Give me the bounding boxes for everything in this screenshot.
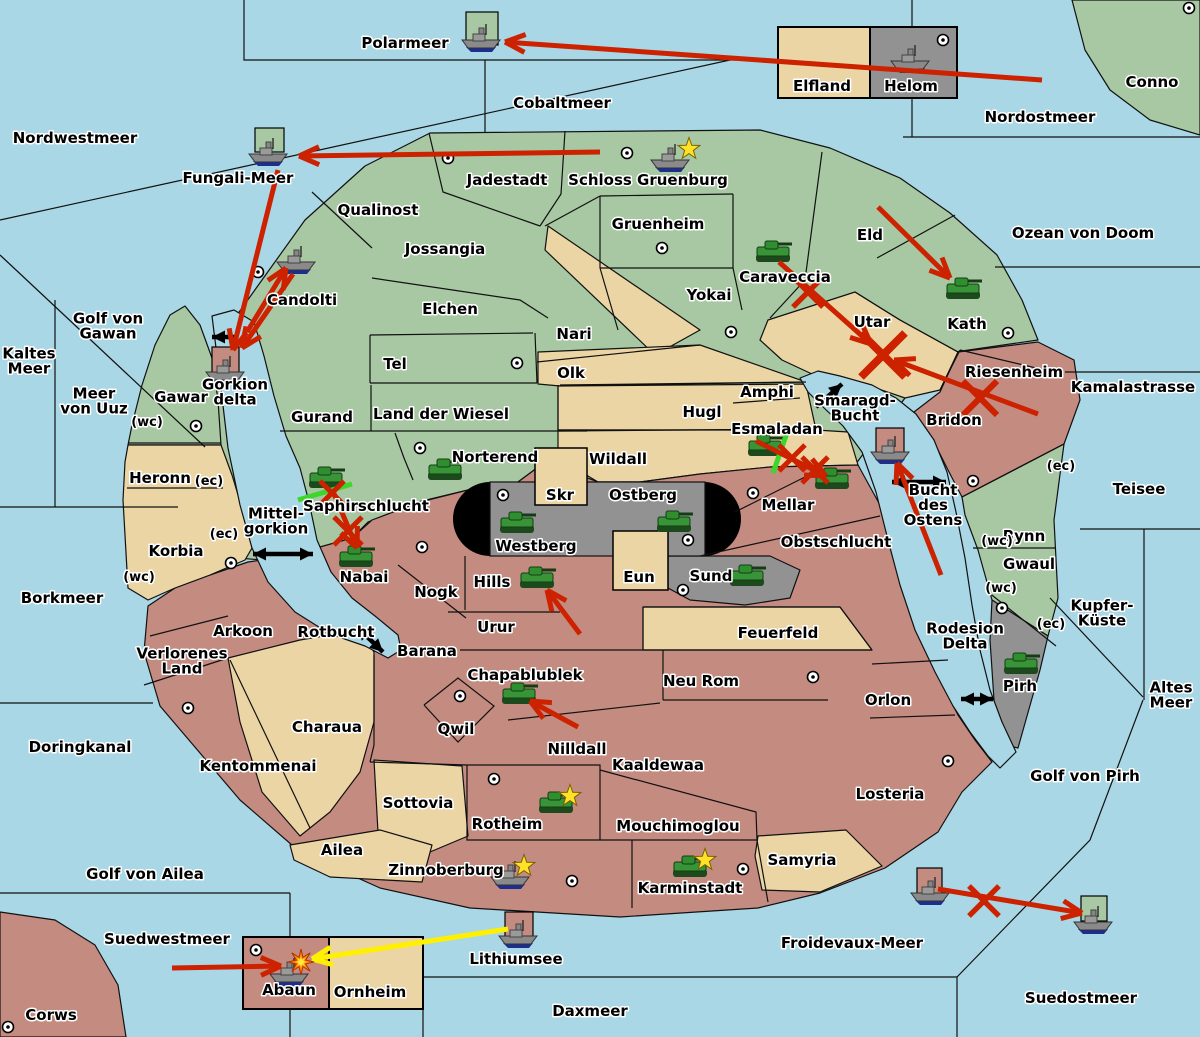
label-line: Qwil xyxy=(438,720,475,738)
label-line: Nordwestmeer xyxy=(13,129,138,147)
label-line: Jossangia xyxy=(404,240,486,258)
coast-label-text: (ec) xyxy=(210,527,238,542)
supply-center-helom xyxy=(938,35,949,46)
label-yokai: Yokai xyxy=(685,286,731,304)
label-line: Rotheim xyxy=(472,815,543,833)
label-ostberg: Ostberg xyxy=(609,486,677,504)
supply-center-sund xyxy=(678,585,689,596)
supply-center-qwil xyxy=(455,691,466,702)
label-line: Abaun xyxy=(262,981,316,999)
label-tel: Tel xyxy=(383,355,407,373)
label-nogk: Nogk xyxy=(414,583,459,601)
label-line: delta xyxy=(213,391,256,409)
coast-label-bynn-wc: (wc) xyxy=(981,534,1013,549)
label-suedostmeer: Suedostmeer xyxy=(1025,989,1138,1007)
label-schloss-gruenburg: Schloss Gruenburg xyxy=(568,171,728,189)
label-line: Tel xyxy=(383,355,407,373)
label-daxmeer: Daxmeer xyxy=(552,1002,628,1020)
label-golf-von-gawan: Golf vonGawan xyxy=(73,310,143,343)
label-line: Barana xyxy=(397,642,457,660)
label-line: Froidevaux-Meer xyxy=(781,934,924,952)
label-helom: Helom xyxy=(884,77,938,95)
label-elchen: Elchen xyxy=(422,300,478,318)
supply-center-kentommenai xyxy=(183,703,194,714)
label-line: Doringkanal xyxy=(29,738,132,756)
label-kaaldewaa: Kaaldewaa xyxy=(612,756,704,774)
label-barana: Barana xyxy=(397,642,457,660)
label-orlon: Orlon xyxy=(865,691,911,709)
label-line: Conno xyxy=(1126,73,1179,91)
label-hills: Hills xyxy=(474,573,511,591)
label-line: Jadestadt xyxy=(466,171,548,189)
label-bridon: Bridon xyxy=(926,411,982,429)
supply-center-losteria xyxy=(943,756,954,767)
label-froidevaux-meer: Froidevaux-Meer xyxy=(781,934,924,952)
coast-label-text: (wc) xyxy=(985,581,1017,596)
label-qwil: Qwil xyxy=(438,720,475,738)
label-skr: Skr xyxy=(546,486,575,504)
label-line: Westberg xyxy=(495,537,576,555)
label-line: Zinnoberburg xyxy=(388,861,504,879)
label-line: Küste xyxy=(1078,612,1126,630)
label-golf-von-pirh: Golf von Pirh xyxy=(1030,767,1140,785)
label-line: gorkion xyxy=(244,520,309,538)
label-utar: Utar xyxy=(854,313,891,331)
label-hugl: Hugl xyxy=(682,403,721,421)
label-line: Korbia xyxy=(148,542,203,560)
label-line: Helom xyxy=(884,77,938,95)
label-land-der-wiesel: Land der Wiesel xyxy=(373,405,509,423)
label-line: Pirh xyxy=(1003,677,1037,695)
label-nordwestmeer: Nordwestmeer xyxy=(13,129,138,147)
label-teisee: Teisee xyxy=(1113,480,1166,498)
coast-label-heronn-ec: (ec) xyxy=(195,474,223,489)
label-polarmeer: Polarmeer xyxy=(361,34,449,52)
label-kentommenai: Kentommenai xyxy=(199,757,316,775)
supply-center-gawar xyxy=(191,421,202,432)
label-elfland: Elfland xyxy=(793,77,851,95)
move-arrowhead xyxy=(530,701,552,703)
label-line: Kentommenai xyxy=(199,757,316,775)
supply-center-nogk xyxy=(417,542,428,553)
label-line: Kath xyxy=(947,315,987,333)
label-line: Urur xyxy=(477,618,515,636)
label-line: Golf von Pirh xyxy=(1030,767,1140,785)
label-pirh: Pirh xyxy=(1003,677,1037,695)
label-zinnoberburg: Zinnoberburg xyxy=(388,861,504,879)
coast-label-text: (ec) xyxy=(195,474,223,489)
map-viewport: PolarmeerNordwestmeerCobaltmeerNordostme… xyxy=(0,0,1200,1037)
label-olk: Olk xyxy=(557,364,586,382)
label-arkoon: Arkoon xyxy=(213,622,273,640)
label-line: Eld xyxy=(857,226,883,244)
label-line: Amphi xyxy=(740,383,794,401)
label-line: Utar xyxy=(854,313,891,331)
label-samyria: Samyria xyxy=(768,851,837,869)
label-ozean-von-doom: Ozean von Doom xyxy=(1012,224,1154,242)
label-gwaul: Gwaul xyxy=(1003,555,1055,573)
label-ornheim: Ornheim xyxy=(334,983,406,1001)
label-line: Nari xyxy=(556,325,591,343)
label-line: Samyria xyxy=(768,851,837,869)
label-candolti: Candolti xyxy=(267,291,337,309)
coast-label-text: (wc) xyxy=(981,534,1013,549)
supply-center-abaun xyxy=(251,945,262,956)
label-line: Hills xyxy=(474,573,511,591)
label-line: Cobaltmeer xyxy=(513,94,611,112)
supply-center-norterend xyxy=(415,443,426,454)
label-jadestadt: Jadestadt xyxy=(466,171,548,189)
supply-center-karminstadt xyxy=(738,864,749,875)
coast-label-gwaul-wc: (wc) xyxy=(985,581,1017,596)
label-line: Gwaul xyxy=(1003,555,1055,573)
label-line: Nordostmeer xyxy=(985,108,1096,126)
label-nordostmeer: Nordostmeer xyxy=(985,108,1096,126)
label-line: Teisee xyxy=(1113,480,1166,498)
label-line: Ozean von Doom xyxy=(1012,224,1154,242)
supply-center-gruenheim xyxy=(657,243,668,254)
label-line: Mellar xyxy=(762,496,816,514)
label-mouchimoglou: Mouchimoglou xyxy=(616,817,739,835)
label-line: Meer xyxy=(8,360,51,378)
label-line: Gurand xyxy=(291,408,353,426)
label-mittel-gorkion: Mittel-gorkion xyxy=(244,505,309,538)
supply-center-pirh xyxy=(997,603,1008,614)
label-losteria: Losteria xyxy=(856,785,925,803)
supply-center-rotheim xyxy=(489,774,500,785)
label-line: Nogk xyxy=(414,583,459,601)
label-korbia: Korbia xyxy=(148,542,203,560)
supply-center-corws xyxy=(3,1022,14,1033)
label-rotbucht: Rotbucht xyxy=(297,623,374,641)
coast-label-korbia-wc: (wc) xyxy=(123,570,155,585)
label-line: Sottovia xyxy=(383,794,454,812)
label-abaun: Abaun xyxy=(262,981,316,999)
supply-center-westberg xyxy=(498,490,509,501)
label-line: Yokai xyxy=(685,286,731,304)
label-line: Gawar xyxy=(154,388,208,406)
label-mellar: Mellar xyxy=(762,496,816,514)
label-gurand: Gurand xyxy=(291,408,353,426)
label-kath: Kath xyxy=(947,315,987,333)
coast-label-gawar-wc: (wc) xyxy=(131,415,163,430)
label-gawar: Gawar xyxy=(154,388,208,406)
label-line: Elchen xyxy=(422,300,478,318)
label-line: Chapablublek xyxy=(467,666,583,684)
label-eun: Eun xyxy=(623,568,655,586)
supply-center-tel xyxy=(512,358,523,369)
label-line: Gruenheim xyxy=(612,215,705,233)
label-ailea: Ailea xyxy=(321,841,363,859)
label-caraveccia: Caraveccia xyxy=(739,268,831,286)
label-line: Delta xyxy=(942,635,987,653)
label-line: Nabai xyxy=(340,568,389,586)
label-line: Ornheim xyxy=(334,983,406,1001)
label-borkmeer: Borkmeer xyxy=(21,589,104,607)
label-line: Karminstadt xyxy=(638,879,743,897)
label-line: Candolti xyxy=(267,291,337,309)
label-norterend: Norterend xyxy=(452,448,539,466)
label-line: Ailea xyxy=(321,841,363,859)
supply-center-schloss-gruenburg xyxy=(622,148,633,159)
label-line: Land der Wiesel xyxy=(373,405,509,423)
supply-center-ostberg xyxy=(683,535,694,546)
label-sottovia: Sottovia xyxy=(383,794,454,812)
label-line: Ostens xyxy=(904,511,963,529)
label-line: Riesenheim xyxy=(965,363,1063,381)
label-saphirschlucht: Saphirschlucht xyxy=(303,497,429,515)
label-doringkanal: Doringkanal xyxy=(29,738,132,756)
label-line: Borkmeer xyxy=(21,589,104,607)
label-charaua: Charaua xyxy=(292,718,362,736)
supply-center-kath xyxy=(1003,328,1014,339)
label-line: von Uuz xyxy=(60,400,128,418)
label-line: Qualinost xyxy=(338,201,419,219)
label-urur: Urur xyxy=(477,618,515,636)
label-suedwestmeer: Suedwestmeer xyxy=(104,930,230,948)
label-karminstadt: Karminstadt xyxy=(638,879,743,897)
label-esmaladan: Esmaladan xyxy=(731,420,823,438)
label-line: Meer xyxy=(1150,694,1193,712)
label-line: Wildall xyxy=(589,450,647,468)
coast-label-gwaul-ec: (ec) xyxy=(1037,617,1065,632)
label-obstschlucht: Obstschlucht xyxy=(781,533,892,551)
game-map: PolarmeerNordwestmeerCobaltmeerNordostme… xyxy=(0,0,1200,1037)
label-riesenheim: Riesenheim xyxy=(965,363,1063,381)
label-line: Land xyxy=(161,660,202,678)
label-line: Losteria xyxy=(856,785,925,803)
coast-label-text: (wc) xyxy=(131,415,163,430)
move-line xyxy=(172,966,281,968)
label-line: Orlon xyxy=(865,691,911,709)
label-line: Golf von Ailea xyxy=(86,865,204,883)
label-jossangia: Jossangia xyxy=(404,240,486,258)
coast-label-text: (wc) xyxy=(123,570,155,585)
label-kamalastrasse: Kamalastrasse xyxy=(1071,378,1195,396)
label-line: Nilldall xyxy=(547,740,606,758)
label-rotheim: Rotheim xyxy=(472,815,543,833)
label-line: Elfland xyxy=(793,77,851,95)
label-cobaltmeer: Cobaltmeer xyxy=(513,94,611,112)
label-line: Norterend xyxy=(452,448,539,466)
label-line: Corws xyxy=(25,1006,77,1024)
supply-center-bridon xyxy=(968,476,979,487)
label-conno: Conno xyxy=(1126,73,1179,91)
label-fungali-meer: Fungali-Meer xyxy=(183,169,294,187)
label-line: Schloss Gruenburg xyxy=(568,171,728,189)
label-line: Polarmeer xyxy=(361,34,449,52)
label-line: Daxmeer xyxy=(552,1002,628,1020)
supply-center-arkoon xyxy=(226,558,237,569)
label-line: Olk xyxy=(557,364,586,382)
label-line: Obstschlucht xyxy=(781,533,892,551)
label-sund: Sund xyxy=(690,567,733,585)
label-line: Lithiumsee xyxy=(469,950,562,968)
label-line: Rotbucht xyxy=(297,623,374,641)
label-line: Suedwestmeer xyxy=(104,930,230,948)
label-line: Suedostmeer xyxy=(1025,989,1138,1007)
label-qualinost: Qualinost xyxy=(338,201,419,219)
coast-label-text: (ec) xyxy=(1037,617,1065,632)
label-eld: Eld xyxy=(857,226,883,244)
move-arrowhead xyxy=(894,359,916,360)
label-chapablublek: Chapablublek xyxy=(467,666,583,684)
label-line: Charaua xyxy=(292,718,362,736)
label-wildall: Wildall xyxy=(589,450,647,468)
label-kaltes-meer: KaltesMeer xyxy=(2,345,55,378)
label-line: Fungali-Meer xyxy=(183,169,294,187)
label-line: Saphirschlucht xyxy=(303,497,429,515)
label-line: Neu Rom xyxy=(663,672,739,690)
label-line: Heronn xyxy=(129,469,191,487)
label-altes-meer: AltesMeer xyxy=(1149,679,1192,712)
label-line: Mouchimoglou xyxy=(616,817,739,835)
supply-center-neu-rom xyxy=(808,672,819,683)
label-line: Hugl xyxy=(682,403,721,421)
label-line: Arkoon xyxy=(213,622,273,640)
coast-label-korbia-ec: (ec) xyxy=(210,527,238,542)
label-line: Sund xyxy=(690,567,733,585)
coast-label-text: (ec) xyxy=(1047,459,1075,474)
supply-center-mellar xyxy=(748,488,759,499)
label-line: Feuerfeld xyxy=(738,624,819,642)
label-line: Gawan xyxy=(79,325,136,343)
label-nabai: Nabai xyxy=(340,568,389,586)
label-lithiumsee: Lithiumsee xyxy=(469,950,562,968)
supply-center-conno xyxy=(1184,3,1195,14)
label-nari: Nari xyxy=(556,325,591,343)
supply-center-yokai xyxy=(726,327,737,338)
move-arrowhead xyxy=(283,268,286,290)
label-heronn: Heronn xyxy=(129,469,191,487)
label-line: Bridon xyxy=(926,411,982,429)
label-line: Caraveccia xyxy=(739,268,831,286)
label-line: Esmaladan xyxy=(731,420,823,438)
label-feuerfeld: Feuerfeld xyxy=(738,624,819,642)
label-golf-von-ailea: Golf von Ailea xyxy=(86,865,204,883)
label-line: Skr xyxy=(546,486,575,504)
label-line: Bucht xyxy=(831,407,880,425)
explosion-abaun xyxy=(288,949,314,975)
label-corws: Corws xyxy=(25,1006,77,1024)
label-nilldall: Nilldall xyxy=(547,740,606,758)
label-kupfer-kueste: Kupfer-Küste xyxy=(1070,597,1133,630)
label-line: Ostberg xyxy=(609,486,677,504)
coast-label-bynn-ec: (ec) xyxy=(1047,459,1075,474)
label-line: Kamalastrasse xyxy=(1071,378,1195,396)
label-gruenheim: Gruenheim xyxy=(612,215,705,233)
label-amphi: Amphi xyxy=(740,383,794,401)
label-westberg: Westberg xyxy=(495,537,576,555)
label-line: Eun xyxy=(623,568,655,586)
label-line: Kaaldewaa xyxy=(612,756,704,774)
label-neu-rom: Neu Rom xyxy=(663,672,739,690)
supply-center-zinnoberburg xyxy=(567,876,578,887)
